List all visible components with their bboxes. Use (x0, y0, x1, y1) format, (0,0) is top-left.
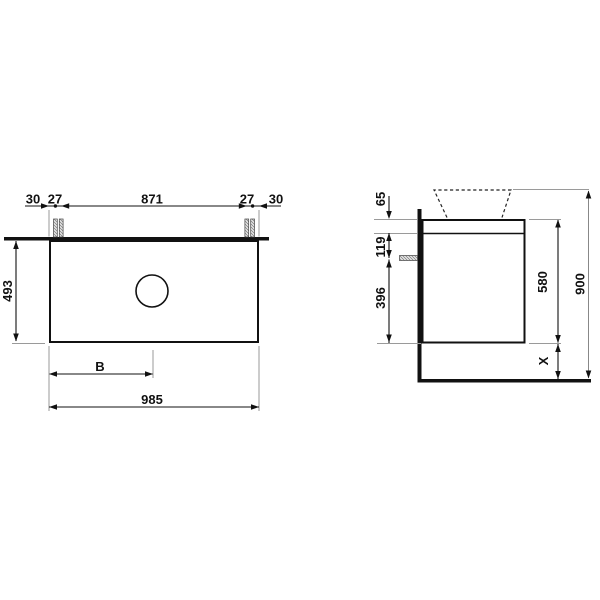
arrowhead (555, 371, 561, 379)
dim-label-screw-pair-right: 27 (240, 192, 254, 207)
mounting-screws-plan (54, 219, 255, 237)
washbasin-dashed-outline (434, 190, 511, 218)
dim-label-plate-thickness: 65 (373, 192, 388, 206)
arrowhead (386, 260, 392, 268)
arrowhead (145, 371, 153, 377)
arrowhead (386, 335, 392, 343)
floor-clearance-dimension: X (536, 344, 561, 379)
arrowhead (251, 404, 259, 410)
countertop-outline (50, 241, 258, 342)
dim-label-cabinet-height: 580 (535, 271, 550, 293)
dim-label-basin-offset: B (95, 359, 104, 374)
left-dimension-column: 65 119 396 (373, 192, 392, 343)
dim-label-lower-height: 396 (373, 287, 388, 309)
width-dimension: 985 (49, 346, 259, 411)
top-dimension-chain: 30 27 871 27 30 (25, 192, 283, 237)
cabinet-outline (423, 220, 525, 343)
arrowhead (586, 371, 592, 379)
side-view: 65 119 396 580 X 900 (373, 190, 591, 383)
arrowhead (555, 344, 561, 352)
arrowhead (49, 371, 57, 377)
mounting-screw-icon (251, 219, 255, 237)
mounting-screw-icon (54, 219, 58, 237)
wall-anchor-screw-icon (400, 256, 418, 261)
arrowhead (61, 203, 69, 209)
wall-line (4, 237, 269, 241)
vanity-technical-drawing: 30 27 871 27 30 493 B (0, 0, 600, 600)
dim-label-floor-clearance: X (536, 356, 551, 365)
dim-label-depth: 493 (0, 280, 15, 302)
dim-label-total-height: 900 (573, 273, 588, 295)
total-height-dimension: 900 (573, 191, 592, 379)
arrowhead (49, 404, 57, 410)
basin-offset-dimension: B (49, 350, 153, 378)
arrowhead (555, 335, 561, 343)
arrowhead (386, 211, 392, 219)
dim-label-edge-offset-left: 30 (26, 192, 40, 207)
plan-view: 30 27 871 27 30 493 B (0, 192, 283, 412)
cabinet-height-dimension: 580 (535, 220, 561, 344)
technical-drawing-page: 30 27 871 27 30 493 B (0, 0, 600, 600)
floor-line (418, 379, 592, 383)
arrowhead (586, 191, 592, 199)
mounting-screw-icon (245, 219, 249, 237)
arrowhead (555, 220, 561, 228)
dim-label-screw-pair-left: 27 (48, 192, 62, 207)
dim-label-width: 985 (141, 392, 163, 407)
dim-label-edge-offset-right: 30 (269, 192, 283, 207)
arrowhead (13, 334, 19, 342)
arrowhead (13, 241, 19, 249)
arrowhead (259, 203, 267, 209)
mounting-screw-icon (59, 219, 63, 237)
depth-dimension: 493 (0, 241, 45, 344)
wall-line (418, 209, 422, 383)
dim-label-bracket-offset: 119 (373, 237, 388, 258)
dim-label-screw-span: 871 (141, 192, 163, 207)
